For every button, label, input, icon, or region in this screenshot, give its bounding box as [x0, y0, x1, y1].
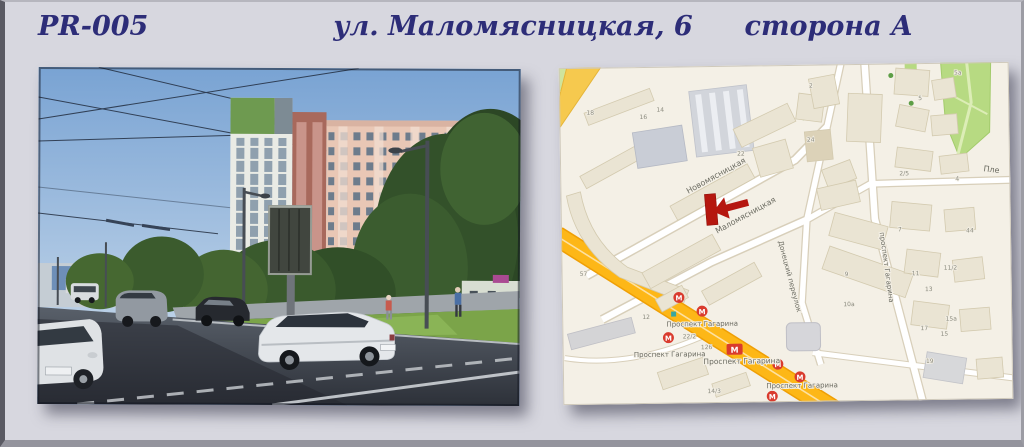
passport-sheet: PR-005 ул. Маломясницкая, 6 сторона А [0, 0, 1024, 447]
location-map: 18 16 14 22 2 24 57 44 7 11 11/2 13 15а … [559, 62, 1014, 405]
metro-station-label: Проспект Гагарина [703, 356, 780, 366]
building-number: 22/2 [683, 333, 697, 340]
building-number: 24 [807, 137, 815, 144]
building-number: 14 [656, 107, 664, 114]
building-number: 14/3 [707, 388, 721, 395]
location-photo [37, 67, 520, 406]
building-number: 5а [954, 70, 962, 77]
building-number: 13 [925, 286, 933, 293]
svg-text:М: М [699, 308, 706, 316]
building-number: 15 [941, 331, 949, 338]
building-number: 11 [912, 270, 920, 277]
svg-text:М: М [796, 374, 803, 382]
building-number: 18 [586, 110, 594, 117]
avenue-label: Проспект Гагарина [666, 320, 738, 329]
building-number: 12 [642, 314, 650, 321]
svg-text:М: М [675, 294, 682, 302]
city-map: 18 16 14 22 2 24 57 44 7 11 11/2 13 15а … [559, 62, 1014, 405]
svg-text:М: М [769, 393, 776, 401]
board-side: сторона А [745, 11, 913, 49]
board-address: ул. Маломясницкая, 6 [333, 11, 692, 49]
building-number: 11/2 [944, 265, 958, 272]
building-number: 2 [809, 83, 813, 90]
building-number: 5 [918, 95, 922, 102]
building-number: 2/5 [899, 170, 909, 177]
avenue-label: Проспект Гагарина [634, 350, 706, 359]
svg-text:М: М [665, 335, 672, 343]
metro-station-icon: М [727, 344, 743, 355]
building-number: 44 [966, 227, 974, 234]
svg-text:М: М [731, 346, 739, 355]
building-number: 15а [946, 316, 958, 323]
street-scene [37, 67, 520, 406]
building-number: 4 [955, 176, 959, 183]
building-number: 9 [845, 271, 849, 278]
avenue-label: Проспект Гагарина [766, 381, 838, 390]
building-number: 17 [920, 325, 928, 332]
building-number: 10а [843, 301, 855, 308]
white-hatchback [37, 319, 103, 389]
building-number: 7 [898, 226, 902, 233]
building-number: 57 [580, 271, 588, 278]
poi-icon [671, 312, 676, 317]
plaza [786, 323, 820, 351]
board-code: PR-005 [38, 11, 148, 49]
building-number: 19 [926, 358, 934, 365]
building-number: 16 [639, 114, 647, 121]
